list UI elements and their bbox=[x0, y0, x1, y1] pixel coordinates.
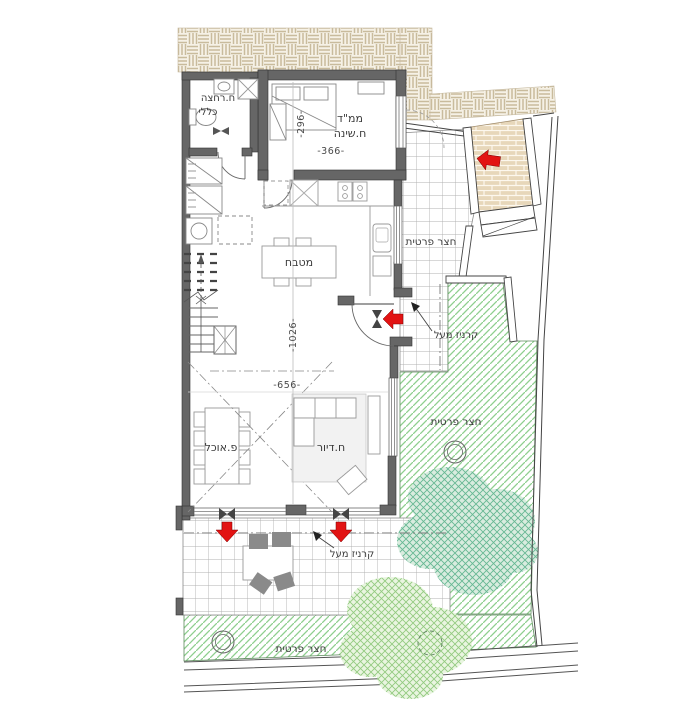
bedroom-label: ח.שינה bbox=[334, 127, 367, 140]
drain-symbol bbox=[213, 127, 229, 135]
cornice-label-south: קרניז מעל bbox=[330, 549, 374, 560]
floor-plan-page: ח.רחצה כללי ממ"ד ח.שינה -366- -296- מטבח… bbox=[0, 0, 680, 710]
sill-symbol-east bbox=[372, 310, 382, 328]
brick-entry-path bbox=[471, 119, 533, 212]
dim-1026: -1026- bbox=[288, 318, 299, 352]
saferoom-label: ממ"ד bbox=[337, 112, 363, 125]
sofa-chaise bbox=[294, 418, 314, 446]
yard-label-east-lower: חצר פרטית bbox=[431, 416, 482, 428]
cooktop bbox=[338, 182, 367, 201]
bedroom-cabinet bbox=[358, 82, 384, 94]
staircase bbox=[184, 254, 236, 354]
living-label: ח.דיור bbox=[317, 441, 345, 454]
bathroom-label: ח.רחצה bbox=[201, 93, 235, 104]
floor-plan-canvas: ח.רחצה כללי ממ"ד ח.שינה -366- -296- מטבח… bbox=[0, 0, 680, 710]
dim-296: -296- bbox=[296, 110, 307, 138]
dining-label: פ.אוכל bbox=[205, 441, 238, 454]
yard-label-east-upper: חצר פרטית bbox=[406, 236, 457, 248]
bedroom-furniture bbox=[270, 82, 384, 140]
cornice-label-east: קרניז מעל bbox=[434, 330, 478, 341]
kitchen-label: מטבח bbox=[285, 256, 313, 269]
washer bbox=[186, 216, 252, 244]
dim-366: -366- bbox=[317, 146, 345, 157]
side-cabinet bbox=[368, 396, 380, 454]
bathroom-sublabel: כללי bbox=[199, 107, 218, 118]
dim-656: -656- bbox=[273, 380, 301, 391]
dishwasher bbox=[373, 256, 391, 276]
yard-label-south: חצר פרטית bbox=[276, 643, 327, 655]
hall-closets bbox=[186, 158, 222, 214]
sofa bbox=[294, 398, 356, 418]
